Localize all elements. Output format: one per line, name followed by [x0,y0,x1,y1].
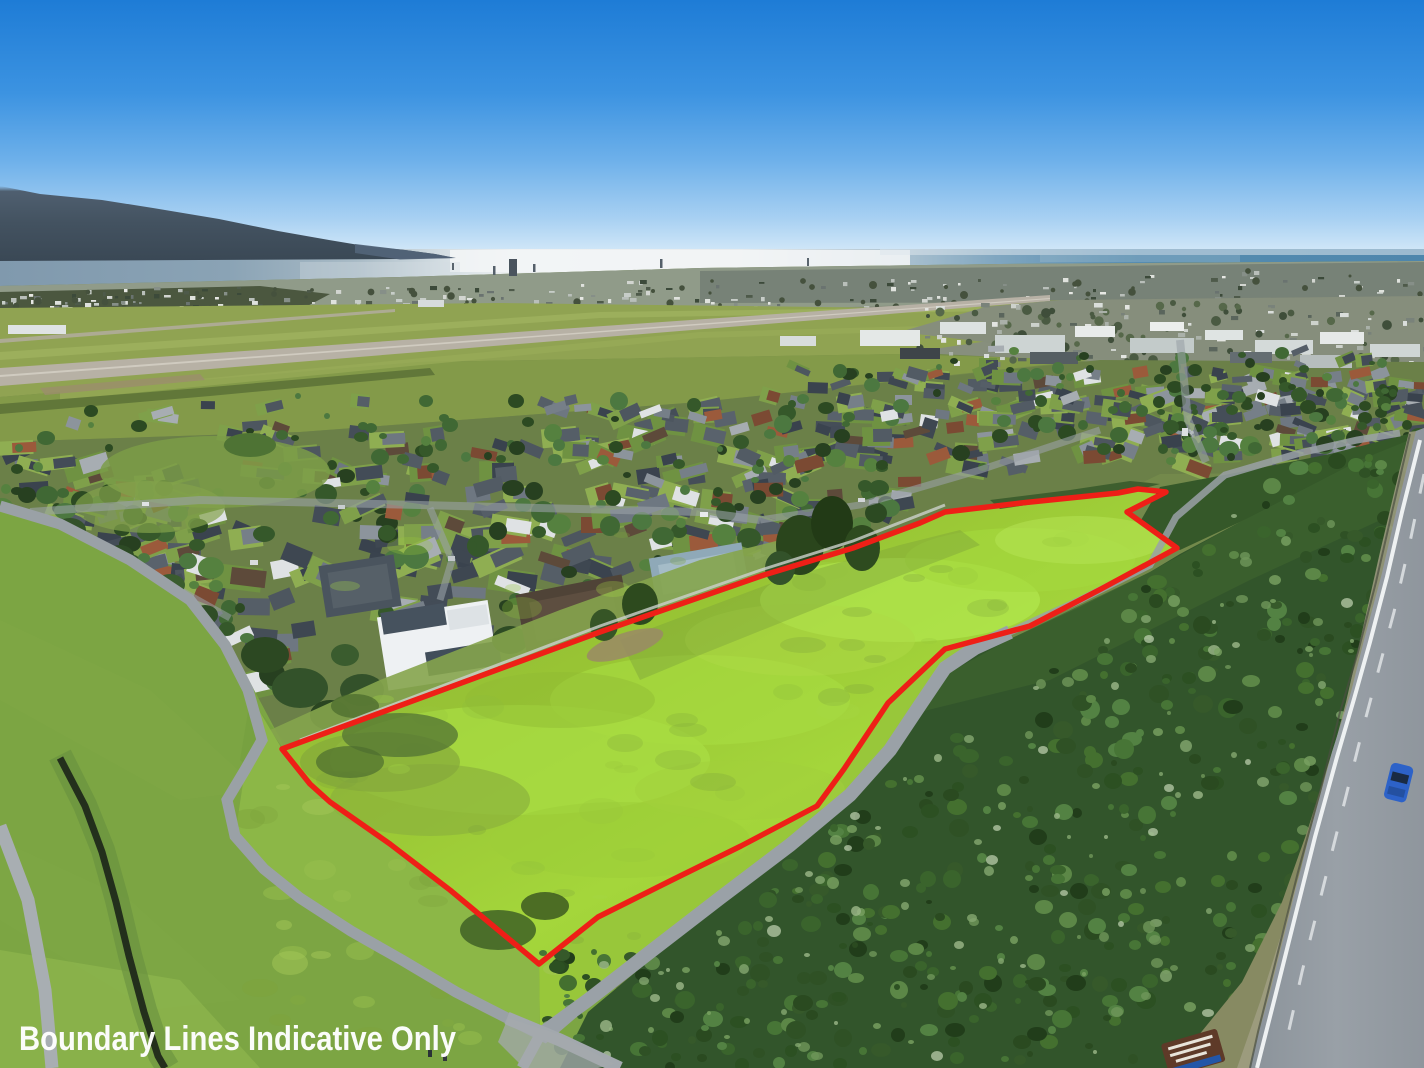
svg-text:Boundary Lines Indicative Only: Boundary Lines Indicative Only [19,1020,456,1058]
